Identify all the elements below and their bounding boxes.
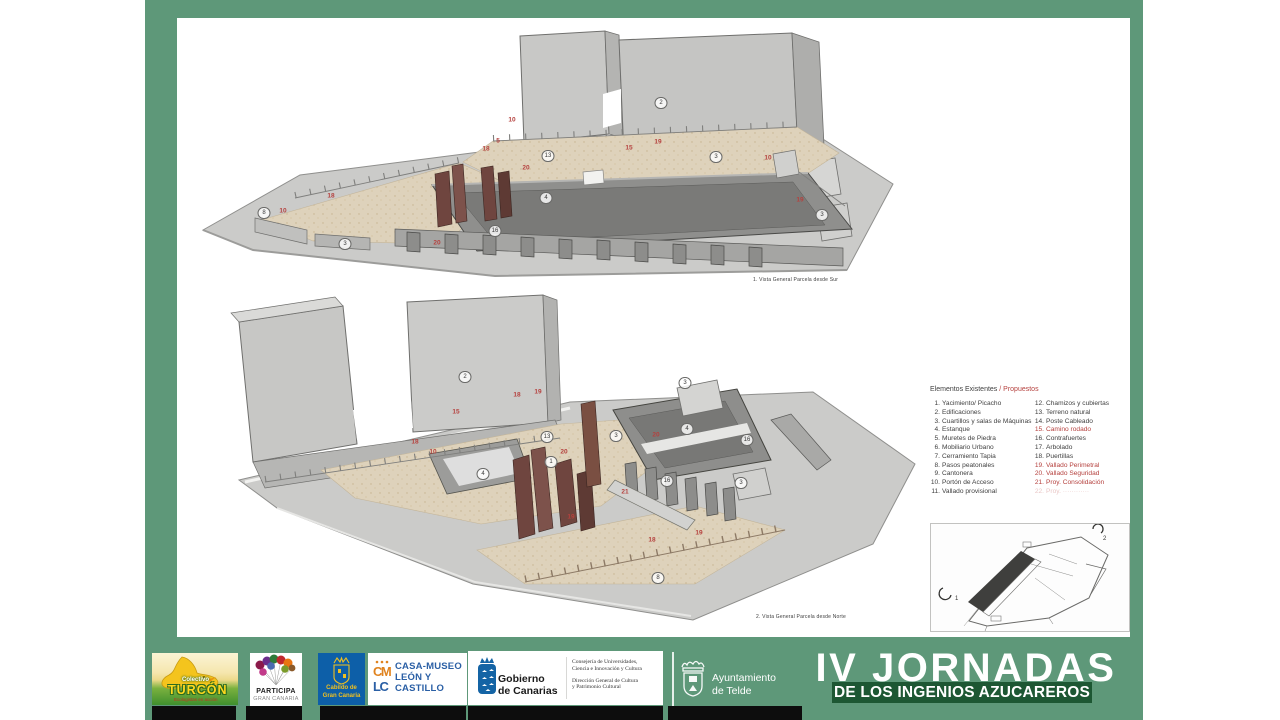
element-label-13: 13	[542, 150, 555, 162]
proposed-label-18: 18	[482, 146, 489, 153]
cabildo-label-2: Gran Canaria	[318, 693, 365, 699]
gobierno-canarias-shield-icon	[474, 657, 500, 699]
proposed-label-20: 20	[652, 432, 659, 439]
proposed-label-20: 20	[560, 449, 567, 456]
cropped-logo-bar	[668, 706, 802, 720]
proposed-label-15: 15	[452, 409, 459, 416]
cabildo-label-1: Cabildo de	[318, 685, 365, 691]
proposed-label-19: 19	[695, 530, 702, 537]
poster-page: 2313416833105182015191019101820 1. Vista…	[0, 0, 1280, 720]
proposed-label-5: 5	[496, 138, 500, 145]
element-label-2: 2	[655, 97, 668, 109]
logo-ayuntamiento-telde: Ayuntamiento de Telde	[680, 656, 805, 706]
legend-item-10: 10.Portón de Acceso	[930, 479, 1034, 488]
legend-header-existing: Elementos Existentes	[930, 386, 997, 393]
participa-balloons-icon	[250, 653, 302, 687]
legend-item-8: 8.Pasos peatonales	[930, 462, 1034, 471]
casa-museo-label-1: CASA-MUSEO	[395, 661, 462, 672]
gobierno-name-1: Gobierno	[498, 673, 558, 685]
participa-sub-label: GRAN CANARIA	[250, 696, 302, 702]
proposed-label-18: 18	[513, 392, 520, 399]
camera-marker-1: 1	[939, 588, 959, 602]
element-label-13: 13	[541, 431, 554, 443]
participa-name-label: PARTICIPA	[250, 688, 302, 695]
gobierno-divider	[566, 657, 567, 699]
legend-item-2: 2.Edificaciones	[930, 409, 1034, 418]
element-label-16: 16	[741, 434, 754, 446]
north-view-labels: 233134161416381918151810202021191819	[225, 292, 925, 622]
legend-item-13: 13.Terreno natural	[1034, 409, 1132, 418]
legend-item-14: 14.Poste Cableado	[1034, 418, 1132, 427]
element-label-4: 4	[540, 192, 553, 204]
proposed-label-18: 18	[411, 439, 418, 446]
render-view-south: 2313416833105182015191019101820	[195, 22, 895, 287]
svg-text:1: 1	[955, 596, 959, 602]
legend-item-4: 4.Estanque	[930, 426, 1034, 435]
poster-subtitle-band: DE LOS INGENIOS AZUCAREROS	[832, 682, 1092, 703]
casa-museo-monogram-icon: CM LC	[372, 659, 396, 699]
gobierno-dept-2: Ciencia e Innovación y Cultura	[572, 666, 642, 673]
casa-museo-label-3: CASTILLO	[395, 683, 462, 694]
element-label-3: 3	[735, 477, 748, 489]
legend-item-12: 12.Chamizos y cubiertas	[1034, 400, 1132, 409]
proposed-label-19: 19	[534, 389, 541, 396]
element-label-3: 3	[710, 151, 723, 163]
proposed-label-15: 15	[625, 145, 632, 152]
legend-item-19: 19.Vallado Perimetral	[1034, 462, 1132, 471]
svg-text:2: 2	[1103, 536, 1107, 542]
logo-turcon: Colectivo TURCÓN Ecologistas en acción	[152, 653, 238, 705]
element-label-16: 16	[489, 225, 502, 237]
gobierno-dept-1: Consejería de Universidades,	[572, 659, 642, 666]
legend-item-9: 9.Cantonera	[930, 470, 1034, 479]
site-plan-illustration: 1 2	[931, 524, 1129, 631]
telde-label-2: de Telde	[712, 685, 776, 698]
element-label-4: 4	[477, 468, 490, 480]
gobierno-dept-3: Dirección General de Cultura	[572, 678, 642, 685]
element-label-8: 8	[258, 207, 271, 219]
cropped-logo-bar	[468, 706, 663, 720]
legend-column-left: 1.Yacimiento/ Picacho2.Edificaciones3.Cu…	[930, 400, 1034, 497]
caption-view-south: 1. Vista General Parcela desde Sur	[753, 277, 838, 283]
logo-gobierno-canarias: Gobierno de Canarias Consejería de Unive…	[468, 651, 663, 705]
legend-item-5: 5.Muretes de Piedra	[930, 435, 1034, 444]
proposed-label-19: 19	[796, 197, 803, 204]
site-plan-inset: 1 2	[930, 523, 1130, 632]
casa-museo-label-2: LEÓN Y	[395, 672, 462, 683]
proposed-label-19: 19	[654, 139, 661, 146]
proposed-label-10: 10	[508, 117, 515, 124]
element-label-4: 4	[681, 423, 694, 435]
proposed-label-19: 19	[567, 514, 574, 521]
legend-item-1: 1.Yacimiento/ Picacho	[930, 400, 1034, 409]
legend-item-21: 21.Proy. Consolidación	[1034, 479, 1132, 488]
cropped-logo-bar	[152, 706, 236, 720]
legend-item-16: 16.Contrafuertes	[1034, 435, 1132, 444]
legend-item-11: 11.Vallado provisional	[930, 488, 1034, 497]
legend-column-right: 12.Chamizos y cubiertas13.Terreno natura…	[1034, 400, 1132, 497]
turcon-sub-label: Ecologistas en acción	[174, 697, 218, 702]
camera-marker-2: 2	[1093, 524, 1107, 542]
element-label-8: 8	[652, 572, 665, 584]
proposed-label-10: 10	[429, 449, 436, 456]
legend-item-15: 15.Camino rodado	[1034, 426, 1132, 435]
turcon-name-label: TURCÓN	[168, 683, 227, 697]
legend-item-18: 18.Puertillas	[1034, 453, 1132, 462]
logo-casa-museo: CM LC CASA-MUSEO LEÓN Y CASTILLO	[368, 653, 467, 705]
cropped-logo-bar	[246, 706, 302, 720]
proposed-label-20: 20	[433, 240, 440, 247]
proposed-label-10: 10	[764, 155, 771, 162]
legend-header-proposed: / Propuestos	[999, 386, 1038, 393]
legend-item-6: 6.Mobiliario Urbano	[930, 444, 1034, 453]
gobierno-dept-4: y Patrimonio Cultural	[572, 684, 642, 691]
element-label-3: 3	[339, 238, 352, 250]
proposed-label-10: 10	[279, 208, 286, 215]
gobierno-name-2: de Canarias	[498, 685, 558, 697]
element-label-3: 3	[816, 209, 829, 221]
telde-label-1: Ayuntamiento	[712, 672, 776, 685]
proposed-label-20: 20	[522, 165, 529, 172]
poster-subtitle: DE LOS INGENIOS AZUCAREROS	[832, 682, 1092, 703]
element-label-1: 1	[545, 456, 558, 468]
footer-divider	[672, 652, 674, 706]
legend-item-22: 22.Proy. ············	[1034, 488, 1132, 497]
telde-crest-icon	[680, 658, 707, 702]
cropped-logo-bar	[320, 706, 466, 720]
logo-cabildo: Cabildo de Gran Canaria	[318, 653, 365, 705]
proposed-label-18: 18	[327, 193, 334, 200]
render-view-north: 233134161416381918151810202021191819	[225, 292, 925, 622]
svg-text:LC: LC	[373, 679, 389, 694]
caption-view-north: 2. Vista General Parcela desde Norte	[756, 614, 846, 620]
svg-text:CM: CM	[373, 664, 391, 679]
element-label-16: 16	[661, 475, 674, 487]
element-label-2: 2	[459, 371, 472, 383]
legend-header: Elementos Existentes / Propuestos	[930, 386, 1132, 393]
cabildo-crest-icon	[318, 655, 365, 687]
legend-item-7: 7.Cerramiento Tapia	[930, 453, 1034, 462]
logo-participa: PARTICIPA GRAN CANARIA	[250, 653, 302, 706]
proposed-label-21: 21	[621, 489, 628, 496]
legend: Elementos Existentes / Propuestos 1.Yaci…	[930, 386, 1132, 497]
element-label-3: 3	[679, 377, 692, 389]
element-label-3: 3	[610, 430, 623, 442]
legend-item-17: 17.Arbolado	[1034, 444, 1132, 453]
south-view-labels: 2313416833105182015191019101820	[195, 22, 895, 287]
proposed-label-18: 18	[648, 537, 655, 544]
legend-item-20: 20.Vallado Seguridad	[1034, 470, 1132, 479]
legend-item-3: 3.Cuartillos y salas de Máquinas	[930, 418, 1034, 427]
